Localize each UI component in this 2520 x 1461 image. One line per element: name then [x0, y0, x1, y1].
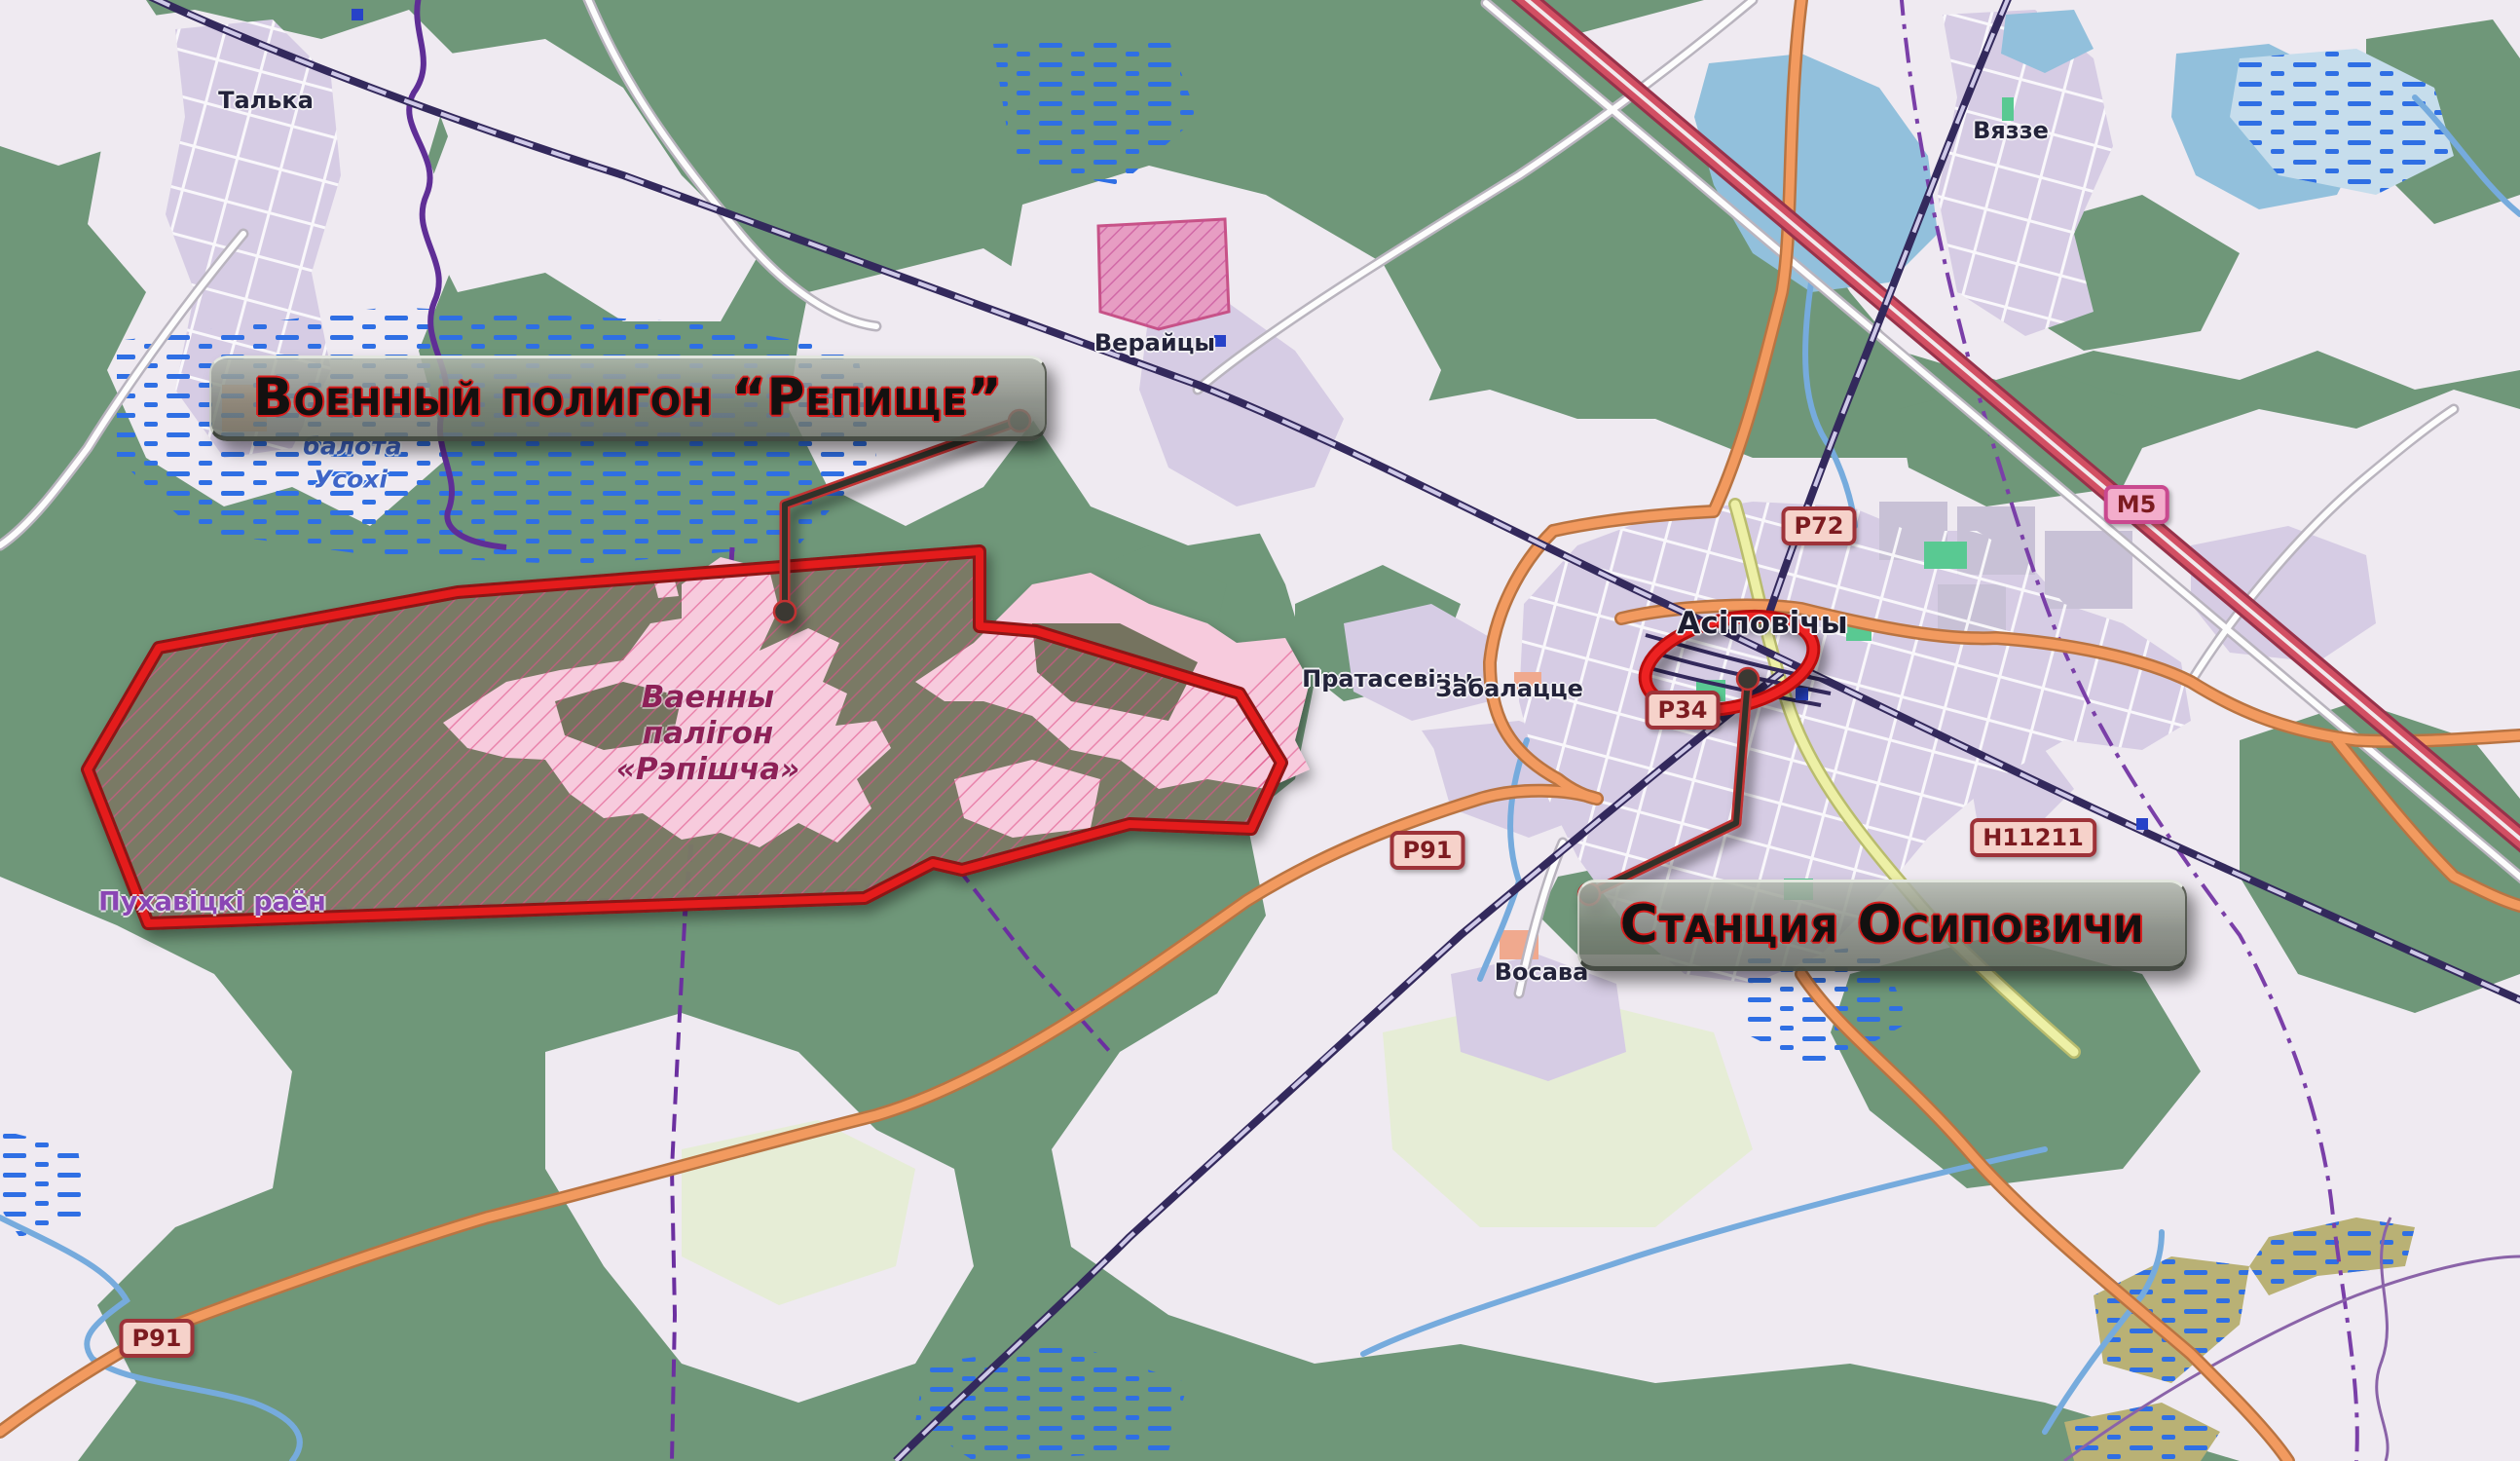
- leader-dot: [1737, 668, 1759, 690]
- shield-label: Р72: [1795, 512, 1844, 540]
- map-canvas: [0, 0, 2520, 1461]
- map-screenshot: Талька Верайцы Вяззе Асіповічы Пратасеві…: [0, 0, 2520, 1461]
- industrial-pink-hatch: [1098, 219, 1229, 329]
- road-shield-p91-southwest: Р91: [120, 1319, 195, 1358]
- shield-label: Р91: [1403, 837, 1453, 864]
- annotation-box-military: Военный полигон “Репище”: [209, 356, 1047, 441]
- station-marker: [1796, 688, 1808, 700]
- building: [1514, 672, 1541, 693]
- leader-dot: [774, 601, 796, 622]
- annotation-text-station: Станция Осиповичи: [1620, 899, 2145, 951]
- park: [2002, 97, 2014, 121]
- road-shield-p91-city: Р91: [1390, 831, 1465, 870]
- road-shield-m5: М5: [2104, 485, 2169, 524]
- shield-label: Р34: [1658, 696, 1708, 724]
- shield-label: Н11211: [1983, 824, 2084, 851]
- road-shield-p34: Р34: [1646, 691, 1721, 730]
- shield-label: М5: [2117, 491, 2157, 518]
- park: [1924, 542, 1967, 569]
- road-shield-p72: Р72: [1782, 506, 1857, 545]
- annotation-box-station: Станция Осиповичи: [1577, 880, 2187, 971]
- industrial-pink-site: [1098, 219, 1229, 329]
- station-marker: [1214, 335, 1226, 347]
- shield-label: Р91: [132, 1325, 182, 1352]
- annotation-text-military: Военный полигон “Репище”: [253, 372, 1002, 424]
- station-marker: [2136, 818, 2148, 830]
- road-shield-h11211: Н11211: [1970, 818, 2096, 857]
- station-marker: [352, 9, 363, 20]
